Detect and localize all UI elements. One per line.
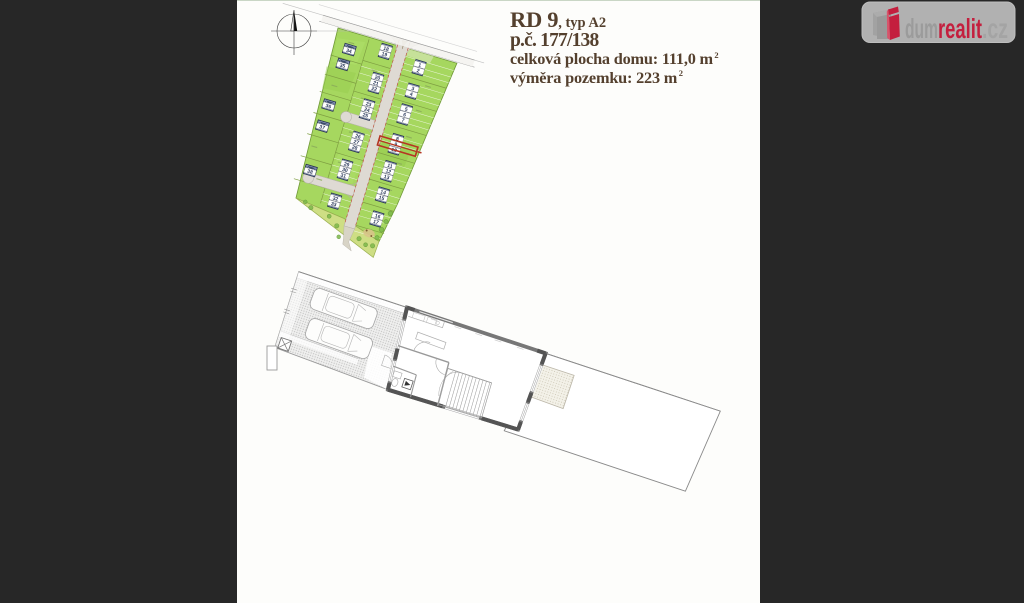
svg-text:dum: dum <box>905 13 938 44</box>
svg-text:realit: realit <box>938 13 982 44</box>
svg-text:.cz: .cz <box>982 13 1008 44</box>
